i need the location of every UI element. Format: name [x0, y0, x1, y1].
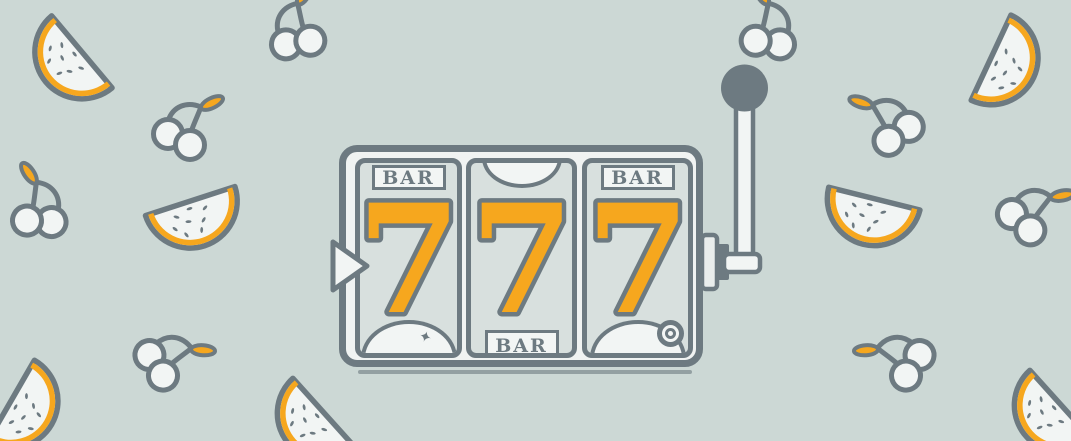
cherries-icon — [986, 169, 1071, 258]
watermelon-icon — [140, 177, 254, 267]
cherries-icon — [844, 309, 950, 411]
seven-symbol: 7 — [355, 201, 462, 326]
ring-inner-icon — [665, 328, 676, 339]
watermelon-icon — [989, 362, 1071, 441]
cherries-icon — [0, 154, 89, 256]
slot-reel-3: BAR 7 — [582, 158, 693, 358]
slot-banner: BAR 7 ✦ 7 BAR BAR 7 — [0, 0, 1071, 441]
cherries-icon — [712, 0, 819, 78]
seven-symbol: 7 — [467, 201, 577, 326]
slot-reel-2: 7 BAR — [466, 158, 577, 358]
star-icon: ✦ — [416, 326, 434, 347]
watermelon-icon — [0, 353, 82, 441]
cherries-icon — [246, 0, 353, 78]
watermelon-icon — [962, 9, 1060, 126]
watermelon-icon — [252, 370, 365, 441]
cherries-icon — [119, 309, 225, 411]
cherries-icon — [149, 92, 231, 162]
bar-badge: BAR — [485, 330, 559, 358]
watermelon-icon — [813, 178, 925, 262]
slot-reel-1: BAR 7 ✦ — [355, 158, 462, 358]
seven-symbol: 7 — [583, 201, 693, 326]
watermelon-icon — [9, 8, 121, 124]
ring-icon — [657, 320, 684, 347]
seven-text: 7 — [469, 172, 573, 348]
cherries-icon — [841, 83, 932, 164]
